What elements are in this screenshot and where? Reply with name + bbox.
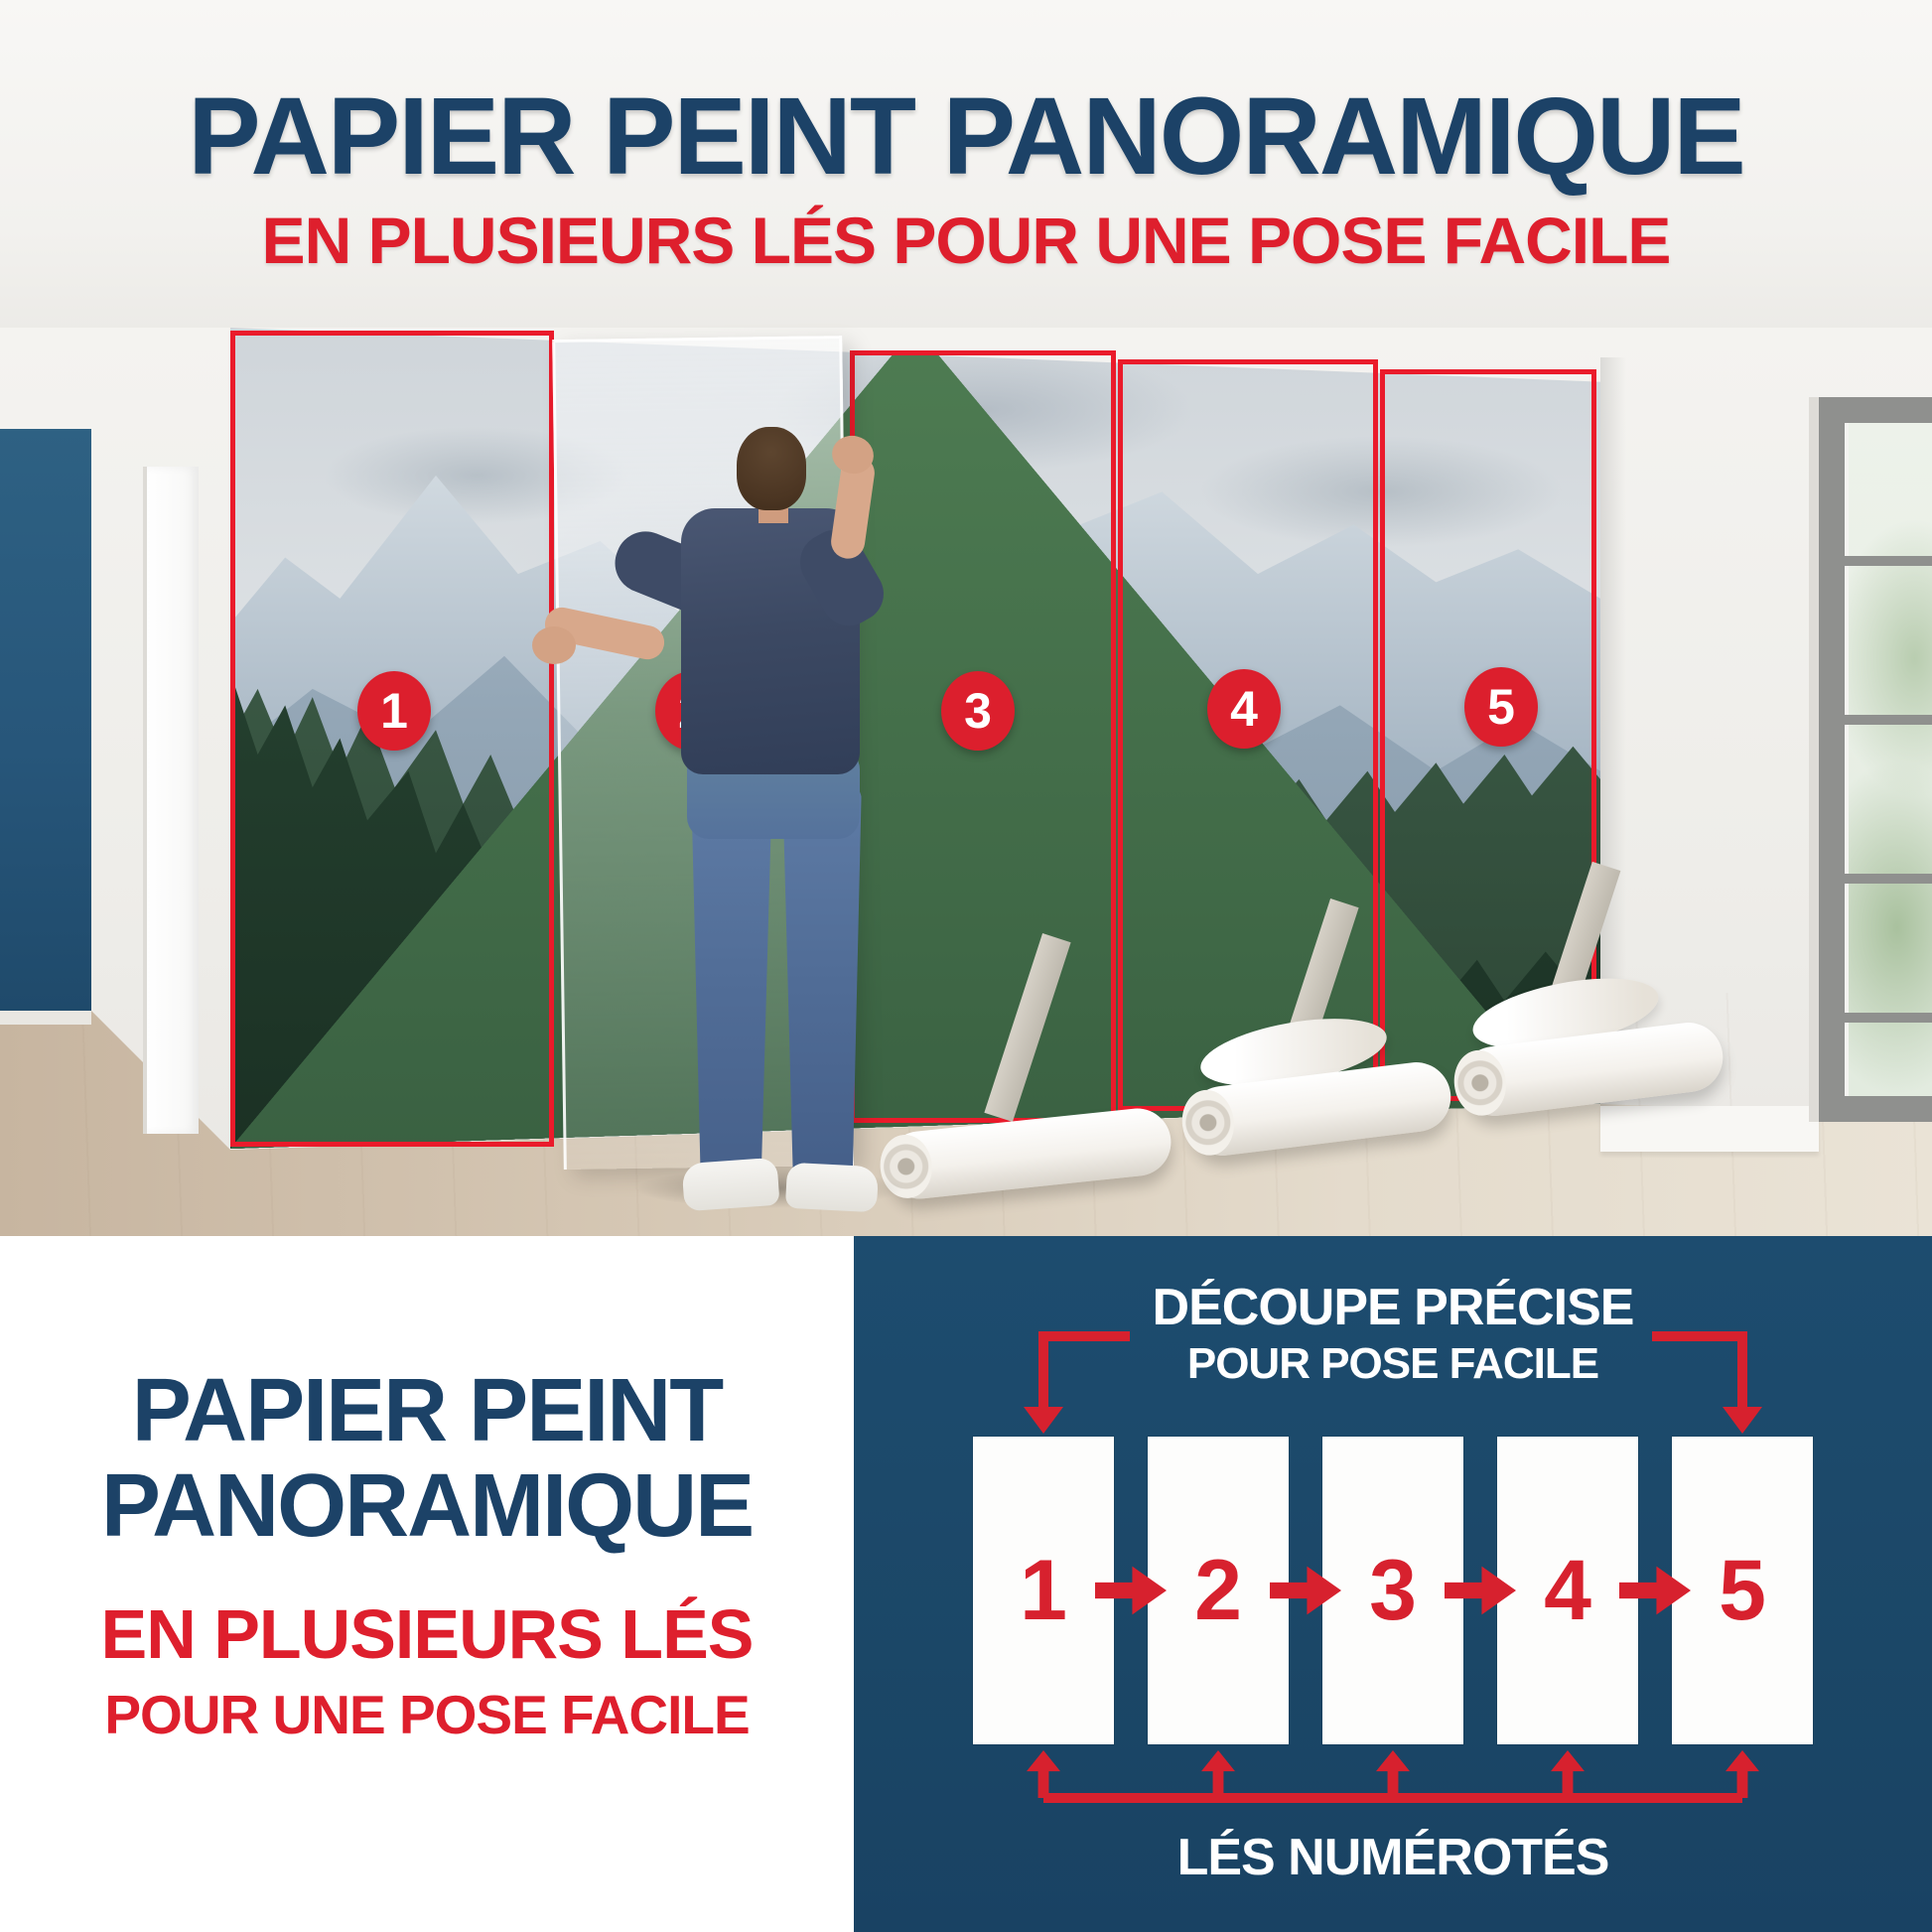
door-opening <box>147 467 199 1134</box>
strip-number-badge-4: 4 <box>1207 669 1281 749</box>
installer-person <box>516 422 933 1208</box>
baseboard-left <box>0 1011 91 1025</box>
bracket-left-vertical <box>1038 1331 1048 1409</box>
window-mullion <box>1839 556 1932 566</box>
diagram-strip-4: 4 <box>1497 1437 1638 1744</box>
bottom-left-title-line2: PANORAMIQUE <box>84 1458 769 1554</box>
navy-accent-wall <box>0 429 91 1011</box>
bottom-left-subtitle-line2: POUR UNE POSE FACILE <box>84 1683 769 1746</box>
diagram-strip-number: 5 <box>1719 1542 1766 1640</box>
arrow-down-icon <box>1723 1407 1762 1434</box>
strip-number-label: 3 <box>964 682 992 740</box>
diagram-strip-number: 1 <box>1020 1542 1067 1640</box>
diagram-caption: LÉS NUMÉROTÉS <box>854 1828 1932 1887</box>
bottom-left-title-line1: PAPIER PEINT <box>84 1363 769 1458</box>
arrow-up-icon <box>1376 1750 1410 1798</box>
person-left-hand <box>532 626 576 664</box>
person-left-shoe <box>681 1158 779 1212</box>
arrow-down-icon <box>1024 1407 1063 1434</box>
numbered-strips-diagram: DÉCOUPE PRÉCISE POUR POSE FACILE 1 2 3 4… <box>854 1236 1932 1932</box>
diagram-strip-1: 1 <box>973 1437 1114 1744</box>
strip-number-badge-3: 3 <box>941 671 1015 751</box>
person-right-leg <box>782 777 862 1192</box>
arrow-up-icon <box>1551 1750 1585 1798</box>
bottom-left-text-block: PAPIER PEINT PANORAMIQUE EN PLUSIEURS LÉ… <box>84 1363 769 1746</box>
strip-number-badge-1: 1 <box>357 671 431 751</box>
strip-number-label: 4 <box>1230 680 1258 738</box>
bottom-left-panel: PAPIER PEINT PANORAMIQUE EN PLUSIEURS LÉ… <box>0 1236 854 1932</box>
bracket-right-horizontal <box>1652 1331 1747 1341</box>
diagram-strip-number: 4 <box>1544 1542 1591 1640</box>
strip-number-label: 1 <box>380 682 408 740</box>
strip-number-label: 5 <box>1487 678 1515 736</box>
baseboard-right <box>1600 1106 1819 1152</box>
bottom-bracket-line <box>1043 1793 1742 1803</box>
person-right-shoe <box>785 1163 879 1213</box>
bracket-left-horizontal <box>1038 1331 1130 1341</box>
diagram-strip-2: 2 <box>1148 1437 1289 1744</box>
diagram-strip-3: 3 <box>1322 1437 1463 1744</box>
diagram-strip-number: 2 <box>1194 1542 1242 1640</box>
diagram-heading-line2: POUR POSE FACILE <box>854 1339 1932 1389</box>
window-glass <box>1845 423 1932 1096</box>
window <box>1819 397 1932 1122</box>
wallpaper-infographic: 1 2 3 4 5 PAPIER PEINT PANORAMIQUE EN PL… <box>0 0 1932 1932</box>
diagram-strip-5: 5 <box>1672 1437 1813 1744</box>
window-mullion <box>1839 1013 1932 1023</box>
bracket-right-vertical <box>1737 1331 1747 1409</box>
arrow-up-icon <box>1201 1750 1235 1798</box>
photo-section: 1 2 3 4 5 PAPIER PEINT PANORAMIQUE EN PL… <box>0 0 1932 1236</box>
bottom-left-subtitle-line1: EN PLUSIEURS LÉS <box>84 1598 769 1672</box>
main-subtitle: EN PLUSIEURS LÉS POUR UNE POSE FACILE <box>0 203 1932 278</box>
diagram-strip-number: 3 <box>1369 1542 1417 1640</box>
person-head <box>737 427 806 510</box>
main-title: PAPIER PEINT PANORAMIQUE <box>0 73 1932 200</box>
window-mullion <box>1839 874 1932 884</box>
arrow-up-icon <box>1725 1750 1759 1798</box>
window-mullion <box>1839 715 1932 725</box>
strip-number-badge-5: 5 <box>1464 667 1538 747</box>
diagram-heading-line1: DÉCOUPE PRÉCISE <box>854 1278 1932 1337</box>
arrow-up-icon <box>1027 1750 1060 1798</box>
